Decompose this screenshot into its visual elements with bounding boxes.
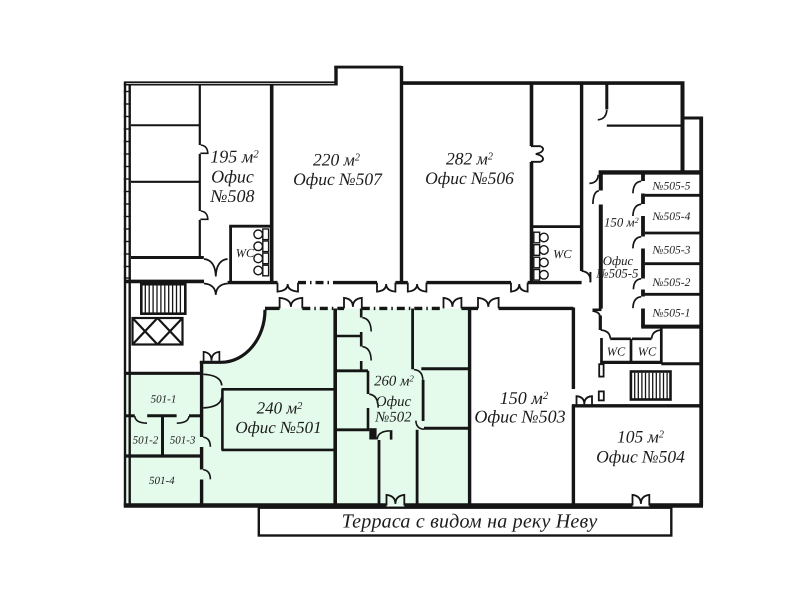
svg-text:WC: WC	[607, 345, 626, 359]
svg-text:№505-2: №505-2	[652, 277, 691, 289]
svg-text:№505-4: №505-4	[652, 211, 691, 223]
svg-text:150 м2: 150 м2	[604, 216, 639, 230]
svg-text:Терраса с видом на реку Неву: Терраса с видом на реку Неву	[342, 511, 598, 533]
svg-text:Офис: Офис	[376, 394, 412, 410]
svg-text:№505-3: №505-3	[652, 245, 691, 257]
svg-text:WC: WC	[553, 247, 572, 261]
svg-text:501-2: 501-2	[133, 434, 159, 446]
svg-text:Офис №507: Офис №507	[293, 169, 383, 189]
svg-text:№505-5: №505-5	[596, 267, 640, 281]
svg-text:№502: №502	[374, 410, 412, 426]
svg-text:Офис №504: Офис №504	[596, 447, 685, 467]
svg-text:Офис №506: Офис №506	[425, 168, 514, 188]
svg-text:Офис №501: Офис №501	[235, 418, 321, 437]
svg-text:105 м2: 105 м2	[617, 427, 665, 447]
svg-text:WC: WC	[236, 246, 255, 260]
svg-text:Офис: Офис	[211, 166, 254, 186]
svg-text:WC: WC	[638, 345, 657, 359]
svg-text:240 м2: 240 м2	[257, 399, 304, 418]
svg-text:282 м2: 282 м2	[446, 149, 494, 169]
svg-text:150 м2: 150 м2	[500, 388, 549, 408]
svg-text:№505-5: №505-5	[652, 181, 691, 193]
svg-text:501-3: 501-3	[170, 434, 196, 446]
svg-text:195 м2: 195 м2	[210, 147, 259, 167]
svg-text:Офис №503: Офис №503	[474, 407, 565, 427]
svg-text:501-1: 501-1	[151, 393, 177, 405]
svg-text:220 м2: 220 м2	[313, 150, 361, 170]
svg-text:501-4: 501-4	[149, 475, 175, 487]
svg-text:№505-1: №505-1	[652, 307, 691, 319]
svg-text:260 м2: 260 м2	[374, 374, 414, 390]
svg-text:№508: №508	[210, 186, 255, 206]
